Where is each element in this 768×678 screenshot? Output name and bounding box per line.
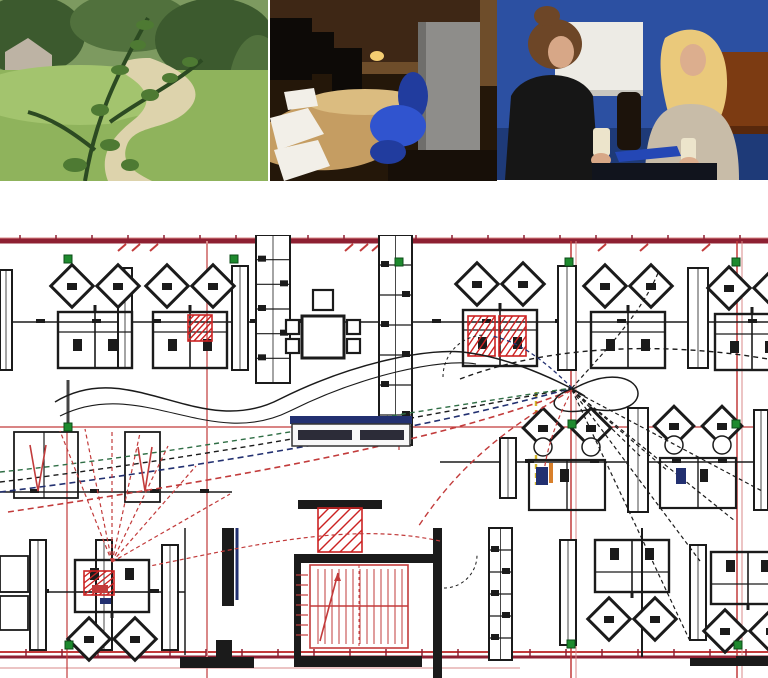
floor-plan-svg xyxy=(0,235,768,678)
wall xyxy=(216,640,232,657)
detail-mark xyxy=(560,469,569,482)
chair xyxy=(534,438,552,456)
wall xyxy=(222,528,234,606)
cabinet xyxy=(754,410,768,510)
monitor-mark xyxy=(604,616,614,623)
floor-box-marker xyxy=(64,255,72,263)
office-interior-photo xyxy=(270,0,497,181)
shelving-cabinet xyxy=(489,528,512,660)
cabinet xyxy=(30,540,46,650)
wall xyxy=(433,528,442,678)
chair-base xyxy=(370,140,406,164)
shelving-cabinet xyxy=(256,235,290,383)
woman2-face xyxy=(680,44,706,76)
chair xyxy=(582,438,600,456)
floor-box-marker xyxy=(565,258,573,266)
shelf-shadow xyxy=(270,18,312,80)
monitor-mark xyxy=(208,283,218,290)
wall xyxy=(294,563,301,658)
detail-mark xyxy=(536,467,548,485)
detail-mark xyxy=(92,585,108,593)
office-chair xyxy=(370,105,426,147)
door-frame xyxy=(480,0,497,86)
floor-box-marker xyxy=(567,640,575,648)
cabinet xyxy=(628,408,648,512)
monitor-mark xyxy=(669,423,679,430)
illegible-text xyxy=(298,430,352,440)
cabinet xyxy=(232,266,248,370)
cabinet xyxy=(500,438,516,498)
floor-box-marker xyxy=(230,255,238,263)
monitor-mark xyxy=(724,285,734,292)
monitor-mark xyxy=(720,628,730,635)
cabinet xyxy=(0,270,12,370)
monitor-mark xyxy=(84,636,94,643)
door-stop xyxy=(150,589,159,593)
chair xyxy=(347,320,360,334)
detail-mark xyxy=(700,469,708,482)
wall xyxy=(736,656,768,665)
cable-tray-label xyxy=(290,416,412,446)
monitor-mark xyxy=(650,616,660,623)
floor-box-marker xyxy=(732,258,740,266)
landscape-path-photo xyxy=(0,0,268,181)
floor-box-marker xyxy=(732,420,740,428)
wall xyxy=(294,554,442,563)
monitor-mark xyxy=(67,283,77,290)
floor-box-marker xyxy=(65,641,73,649)
woman1-face xyxy=(548,36,574,68)
monitor-mark xyxy=(162,283,172,290)
monitor xyxy=(306,32,334,74)
bench xyxy=(592,163,717,180)
collage-page: { "photos": [ { "name": "landscape-path-… xyxy=(0,0,768,678)
chair xyxy=(313,290,333,310)
detail-mark xyxy=(100,598,111,604)
detail-mark xyxy=(549,463,553,483)
door-stop xyxy=(92,319,101,323)
floor-box-marker xyxy=(64,423,72,431)
door-stop xyxy=(36,319,45,323)
chair xyxy=(665,436,683,454)
chair xyxy=(286,339,299,353)
monitor-mark xyxy=(538,425,548,432)
wall xyxy=(294,656,422,667)
door-stop xyxy=(617,319,626,323)
cabinet xyxy=(560,540,576,645)
door-stop xyxy=(672,459,681,463)
cabinet xyxy=(688,268,708,368)
illegible-text xyxy=(360,430,404,440)
detail-mark xyxy=(676,468,686,484)
flask xyxy=(617,92,641,150)
wall xyxy=(180,657,254,668)
door-stop xyxy=(432,319,441,323)
monitor-mark xyxy=(717,423,727,430)
woman1-hair-bun xyxy=(534,6,560,26)
floor-box-marker xyxy=(395,258,403,266)
monitor-mark xyxy=(113,283,123,290)
floor-box-marker xyxy=(734,641,742,649)
monitor-mark xyxy=(518,281,528,288)
chair xyxy=(347,339,360,353)
door-stop xyxy=(718,459,727,463)
two-women-talking-photo xyxy=(497,0,768,180)
chair xyxy=(713,436,731,454)
chair xyxy=(286,320,299,334)
drink-cup xyxy=(593,128,610,156)
monitor xyxy=(332,48,362,94)
door-stop xyxy=(200,489,209,493)
woman1-jacket xyxy=(505,75,599,180)
monitor-mark xyxy=(472,281,482,288)
monitor-mark xyxy=(130,636,140,643)
desk-lamp-glow xyxy=(370,51,384,61)
floor-box-marker xyxy=(568,420,576,428)
monitor-mark xyxy=(600,283,610,290)
